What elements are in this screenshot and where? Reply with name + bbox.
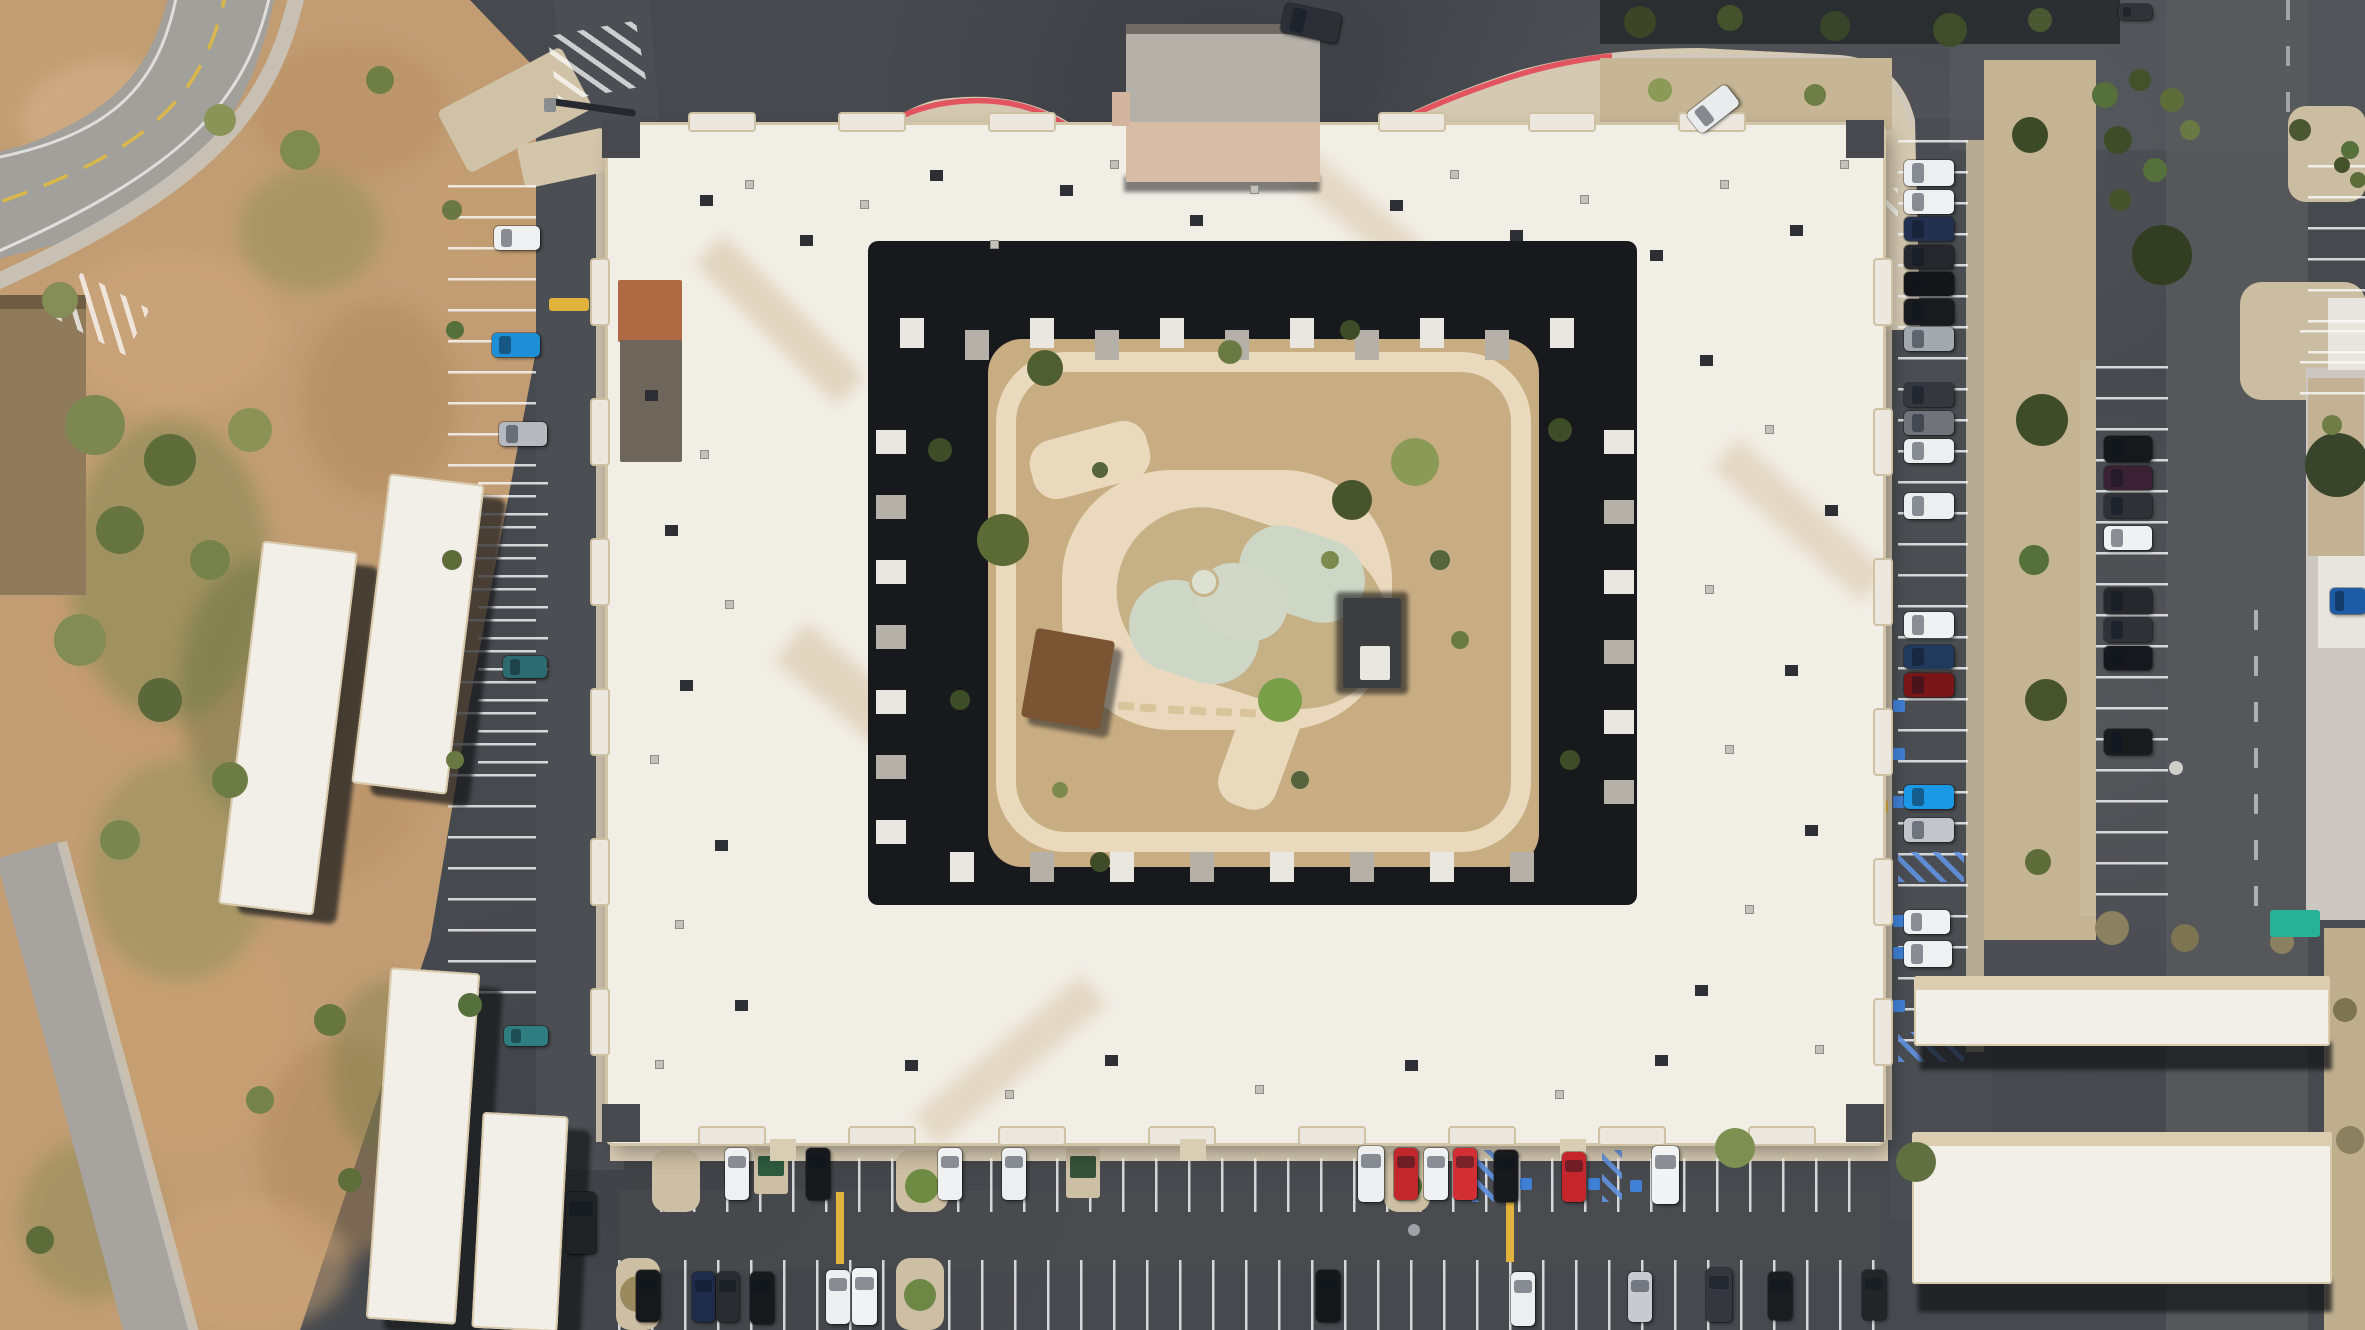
bush xyxy=(2104,126,2132,154)
garage-roof xyxy=(1912,1132,2332,1284)
roof-bump xyxy=(592,840,608,904)
balcony-block xyxy=(876,560,906,584)
car xyxy=(938,1148,962,1200)
dry-tree xyxy=(2336,1126,2364,1154)
tree xyxy=(280,130,320,170)
balcony-block xyxy=(876,690,906,714)
roof-bump xyxy=(1380,114,1444,130)
hvac-unit xyxy=(1060,185,1073,196)
car xyxy=(2104,494,2152,518)
bush xyxy=(2092,82,2118,108)
roof-vent xyxy=(1255,1085,1264,1094)
roof-vent xyxy=(675,920,684,929)
roof-vent xyxy=(1450,170,1459,179)
balcony-block xyxy=(965,330,989,360)
roof-bump xyxy=(1875,260,1891,324)
island-tree xyxy=(905,1169,939,1203)
car xyxy=(1494,1150,1518,1202)
roof-vent xyxy=(725,600,734,609)
balcony-block xyxy=(1420,318,1444,348)
crosswalk-hatch xyxy=(547,21,647,102)
bush xyxy=(2019,545,2049,575)
manhole xyxy=(2169,761,2183,775)
tree xyxy=(1717,5,1743,31)
balcony-block xyxy=(1110,852,1134,882)
tree xyxy=(2305,433,2365,497)
courtyard-bush xyxy=(1092,462,1108,478)
roof-vent xyxy=(700,450,709,459)
tree xyxy=(458,993,482,1017)
hvac-unit xyxy=(1105,1055,1118,1066)
yellow-aisle-line xyxy=(1506,1196,1514,1262)
yellow-aisle-line xyxy=(836,1192,844,1264)
lounge-chair xyxy=(1118,701,1135,710)
car xyxy=(1394,1148,1418,1200)
ring-shrub xyxy=(950,690,970,710)
dry-tree xyxy=(2095,911,2129,945)
suv xyxy=(1652,1146,1679,1204)
hvac-unit xyxy=(645,390,658,401)
balcony-block xyxy=(1030,318,1054,348)
roof-corner-cut xyxy=(602,120,640,158)
bush xyxy=(2322,415,2342,435)
stall-column xyxy=(2300,330,2365,400)
balcony-block xyxy=(1550,318,1574,348)
lane-dash xyxy=(2286,0,2290,130)
roof-vent xyxy=(990,240,999,249)
balcony-block xyxy=(1290,318,1314,348)
balcony-block xyxy=(876,625,906,649)
hvac-unit xyxy=(1650,250,1663,261)
bush xyxy=(2289,119,2311,141)
roof-vent xyxy=(1110,160,1119,169)
car xyxy=(1904,941,1952,967)
balcony-block xyxy=(900,318,924,348)
car xyxy=(492,333,540,357)
hvac-unit xyxy=(735,1000,748,1011)
car xyxy=(504,1026,548,1046)
balcony-block xyxy=(1160,318,1184,348)
tree xyxy=(54,614,106,666)
spa xyxy=(1192,570,1216,594)
tree xyxy=(338,1168,362,1192)
car xyxy=(725,1148,749,1200)
tree xyxy=(366,66,394,94)
tree xyxy=(1624,6,1656,38)
gate-post xyxy=(544,98,556,112)
garage-shadow xyxy=(1920,1042,2332,1070)
roof-bump xyxy=(1530,114,1594,130)
roof-bump xyxy=(700,1128,764,1144)
hvac-unit xyxy=(1190,215,1203,226)
bush xyxy=(2129,69,2151,91)
car xyxy=(692,1272,715,1322)
roof-vent xyxy=(745,180,754,189)
courtyard-bush xyxy=(1052,782,1068,798)
suv xyxy=(1904,299,1954,325)
car xyxy=(1904,785,1954,809)
car xyxy=(1904,383,1954,407)
balcony-block xyxy=(1510,852,1534,882)
tree xyxy=(138,678,182,722)
car xyxy=(1904,411,1954,435)
tree xyxy=(2012,117,2048,153)
hvac-unit xyxy=(930,170,943,181)
hvac-unit xyxy=(700,195,713,206)
hvac-unit xyxy=(1785,665,1798,676)
lounge-chair xyxy=(1140,703,1157,712)
tree xyxy=(65,395,125,455)
roof-corner-cut xyxy=(1846,1104,1884,1142)
speed-bump xyxy=(549,298,589,311)
roof-vent xyxy=(650,755,659,764)
suv xyxy=(1706,1268,1732,1322)
balcony-block xyxy=(1430,852,1454,882)
roof-vent xyxy=(1745,905,1754,914)
dumpster-teal xyxy=(2270,910,2320,937)
suv xyxy=(2104,588,2152,614)
tree xyxy=(228,408,272,452)
car xyxy=(2104,618,2152,642)
balcony-block xyxy=(1604,710,1634,734)
courtyard-bush xyxy=(1218,340,1242,364)
car xyxy=(2104,646,2152,670)
entry-canopy-court xyxy=(1126,122,1320,182)
roof-bump xyxy=(1875,710,1891,774)
lounge-chair xyxy=(1190,706,1207,715)
roof-vent xyxy=(1765,425,1774,434)
tree xyxy=(2025,679,2067,721)
bush xyxy=(2350,172,2365,188)
hvac-unit xyxy=(680,680,693,691)
balcony-block xyxy=(1350,852,1374,882)
courtyard-tree xyxy=(1258,678,1302,722)
hvac-unit xyxy=(1790,225,1803,236)
roof-bump xyxy=(990,114,1054,130)
car xyxy=(1904,673,1954,697)
roof-bump xyxy=(592,540,608,604)
no-park-hatch xyxy=(1602,1150,1622,1202)
west-balcony xyxy=(620,340,682,462)
balcony-block xyxy=(1604,780,1634,804)
roof-vent xyxy=(655,1060,664,1069)
tree xyxy=(42,282,78,318)
roof-vent xyxy=(860,200,869,209)
tree xyxy=(1820,11,1850,41)
roof-vent xyxy=(1720,180,1729,189)
courtyard-bush xyxy=(1291,771,1309,789)
roof-bump xyxy=(1875,410,1891,474)
ring-shrub xyxy=(1090,852,1110,872)
roof-bump xyxy=(1600,1128,1664,1144)
roof-corner-cut xyxy=(1846,120,1884,158)
balcony-block xyxy=(1030,852,1054,882)
roof-vent xyxy=(1725,745,1734,754)
site-objects-layer xyxy=(0,0,2365,1330)
car xyxy=(716,1272,739,1322)
balcony-block xyxy=(876,755,906,779)
lane-dash xyxy=(2254,610,2258,910)
balcony-block xyxy=(1604,430,1634,454)
ring-shrub xyxy=(1548,418,1572,442)
car xyxy=(499,422,547,446)
no-park-hatch xyxy=(1898,852,1964,882)
car xyxy=(1562,1152,1586,1202)
balcony-block xyxy=(1095,330,1119,360)
roof-bump xyxy=(592,260,608,324)
tree xyxy=(26,1226,54,1254)
bush xyxy=(1648,78,1672,102)
roof-bump xyxy=(1750,1128,1814,1144)
handicap-icon xyxy=(1630,1180,1642,1192)
bush xyxy=(442,550,462,570)
hvac-unit xyxy=(1700,355,1713,366)
pergola xyxy=(1021,628,1115,731)
bush xyxy=(446,321,464,339)
car xyxy=(636,1270,660,1322)
car xyxy=(503,656,547,678)
roof-corner-cut xyxy=(602,1104,640,1142)
car xyxy=(1424,1148,1448,1200)
car xyxy=(806,1148,830,1200)
car xyxy=(1002,1148,1026,1200)
roof-bump xyxy=(1000,1128,1064,1144)
dry-tree xyxy=(2171,924,2199,952)
tree xyxy=(2132,225,2192,285)
balcony-block xyxy=(876,430,906,454)
hvac-unit xyxy=(1655,1055,1668,1066)
roof-bump xyxy=(592,990,608,1054)
south-entry-walk xyxy=(770,1139,796,1161)
courtyard-tree xyxy=(977,514,1029,566)
hvac-unit xyxy=(905,1060,918,1071)
tree xyxy=(212,762,248,798)
balcony-block xyxy=(1604,640,1634,664)
roof-vent xyxy=(1705,585,1714,594)
balcony-block xyxy=(950,852,974,882)
roof-bump xyxy=(592,690,608,754)
bush xyxy=(2180,120,2200,140)
hvac-unit xyxy=(1695,985,1708,996)
car xyxy=(1904,217,1954,241)
parking-island xyxy=(652,1150,700,1212)
suv xyxy=(2104,436,2152,462)
lounge-chair xyxy=(1168,705,1185,714)
car xyxy=(826,1270,850,1324)
roof-bump xyxy=(1875,860,1891,924)
roof-vent xyxy=(1580,195,1589,204)
balcony-block xyxy=(1485,330,1509,360)
hvac-unit xyxy=(1405,1060,1418,1071)
car xyxy=(1768,1272,1792,1320)
roof-bump xyxy=(1450,1128,1514,1144)
car xyxy=(1904,245,1954,269)
bush xyxy=(1804,84,1826,106)
balcony-block xyxy=(1604,500,1634,524)
courtyard-palm xyxy=(1391,438,1439,486)
courtyard-bush xyxy=(1451,631,1469,649)
roof-bump xyxy=(592,400,608,464)
car xyxy=(1904,493,1954,519)
bush xyxy=(442,200,462,220)
garage-shadow xyxy=(1918,1280,2332,1312)
east-gravel-curb xyxy=(1966,140,1984,1052)
balcony-block xyxy=(1270,852,1294,882)
roof-bump xyxy=(840,114,904,130)
car xyxy=(2330,588,2365,614)
car xyxy=(2104,466,2152,490)
roof-bump xyxy=(690,114,754,130)
tree xyxy=(1896,1142,1936,1182)
dry-tree xyxy=(2333,998,2357,1022)
suv xyxy=(566,1192,596,1254)
car xyxy=(1904,645,1954,669)
roof-vent xyxy=(1555,1090,1564,1099)
lounge-chair xyxy=(1216,707,1233,716)
roof-bump xyxy=(1875,560,1891,624)
entry-canopy-roof xyxy=(1126,28,1320,124)
tree xyxy=(1933,13,1967,47)
roof-vent xyxy=(1815,1045,1824,1054)
handicap-icon xyxy=(1588,1178,1600,1190)
balcony-block xyxy=(876,495,906,519)
courtyard-tree xyxy=(1332,480,1372,520)
tree xyxy=(144,434,196,486)
balcony-block xyxy=(876,820,906,844)
bush xyxy=(2025,849,2051,875)
hvac-unit xyxy=(715,840,728,851)
tree xyxy=(204,104,236,136)
tree xyxy=(2028,8,2052,32)
courtyard-bush xyxy=(1321,551,1339,569)
roof-bump xyxy=(1300,1128,1364,1144)
car xyxy=(1904,272,1954,296)
tree xyxy=(190,540,230,580)
car xyxy=(1904,612,1954,638)
handicap-icon xyxy=(1893,748,1905,760)
bush xyxy=(2109,189,2131,211)
hvac-unit xyxy=(665,525,678,536)
hvac-unit xyxy=(1825,505,1838,516)
roof-vent xyxy=(1250,185,1259,194)
balcony-block xyxy=(1604,570,1634,594)
tree xyxy=(2016,394,2068,446)
garage-roof xyxy=(1914,976,2330,1046)
tree xyxy=(246,1086,274,1114)
ring-shrub xyxy=(928,438,952,462)
car xyxy=(1628,1272,1652,1322)
stall-row xyxy=(618,1260,1880,1330)
tree xyxy=(314,1004,346,1036)
handicap-icon xyxy=(1893,700,1905,712)
van xyxy=(1358,1146,1384,1202)
car xyxy=(1511,1272,1535,1326)
west-entry-tile-roof xyxy=(618,280,682,342)
car xyxy=(1904,910,1950,934)
car xyxy=(2118,4,2152,20)
bush xyxy=(2160,88,2184,112)
car xyxy=(1862,1270,1886,1320)
tree xyxy=(100,820,140,860)
roof-bump xyxy=(1875,1000,1891,1064)
courtyard-tree xyxy=(1027,350,1063,386)
car xyxy=(1904,818,1954,842)
car xyxy=(2104,526,2152,550)
island-tree xyxy=(1715,1128,1755,1168)
van xyxy=(852,1268,877,1325)
car xyxy=(494,226,540,250)
hvac-unit xyxy=(800,235,813,246)
bush xyxy=(2334,157,2350,173)
bush xyxy=(2143,158,2167,182)
ring-shrub xyxy=(1560,750,1580,770)
roof-vent xyxy=(1005,1090,1014,1099)
island-tree xyxy=(904,1279,936,1311)
car xyxy=(1904,190,1954,214)
aerial-photo-apartment-complex xyxy=(0,0,2365,1330)
far-right-curb xyxy=(2080,360,2096,916)
south-entry-walk xyxy=(1180,1139,1206,1161)
roof-vent xyxy=(1840,160,1849,169)
car xyxy=(750,1272,774,1324)
entry-canopy-nub xyxy=(1112,92,1130,126)
car xyxy=(2104,729,2152,755)
hvac-unit xyxy=(1805,825,1818,836)
roof-bump xyxy=(850,1128,914,1144)
bush xyxy=(446,751,464,769)
courtyard-bush xyxy=(1430,550,1450,570)
balcony-block xyxy=(1190,852,1214,882)
van xyxy=(1904,160,1954,186)
handicap-icon xyxy=(1893,1000,1905,1012)
car xyxy=(1904,327,1954,351)
dumpster xyxy=(1070,1156,1096,1178)
handicap-icon xyxy=(1520,1178,1532,1190)
lounge-chair xyxy=(1240,708,1257,717)
ring-shrub xyxy=(1340,320,1360,340)
hvac-unit xyxy=(1390,200,1403,211)
manhole xyxy=(1408,1224,1420,1236)
garage-roof xyxy=(471,1112,568,1330)
pool-house-court xyxy=(1360,646,1390,680)
hvac-unit xyxy=(1510,230,1523,241)
tree xyxy=(96,506,144,554)
car xyxy=(1904,439,1954,463)
car xyxy=(1453,1148,1477,1200)
car xyxy=(1316,1270,1340,1322)
